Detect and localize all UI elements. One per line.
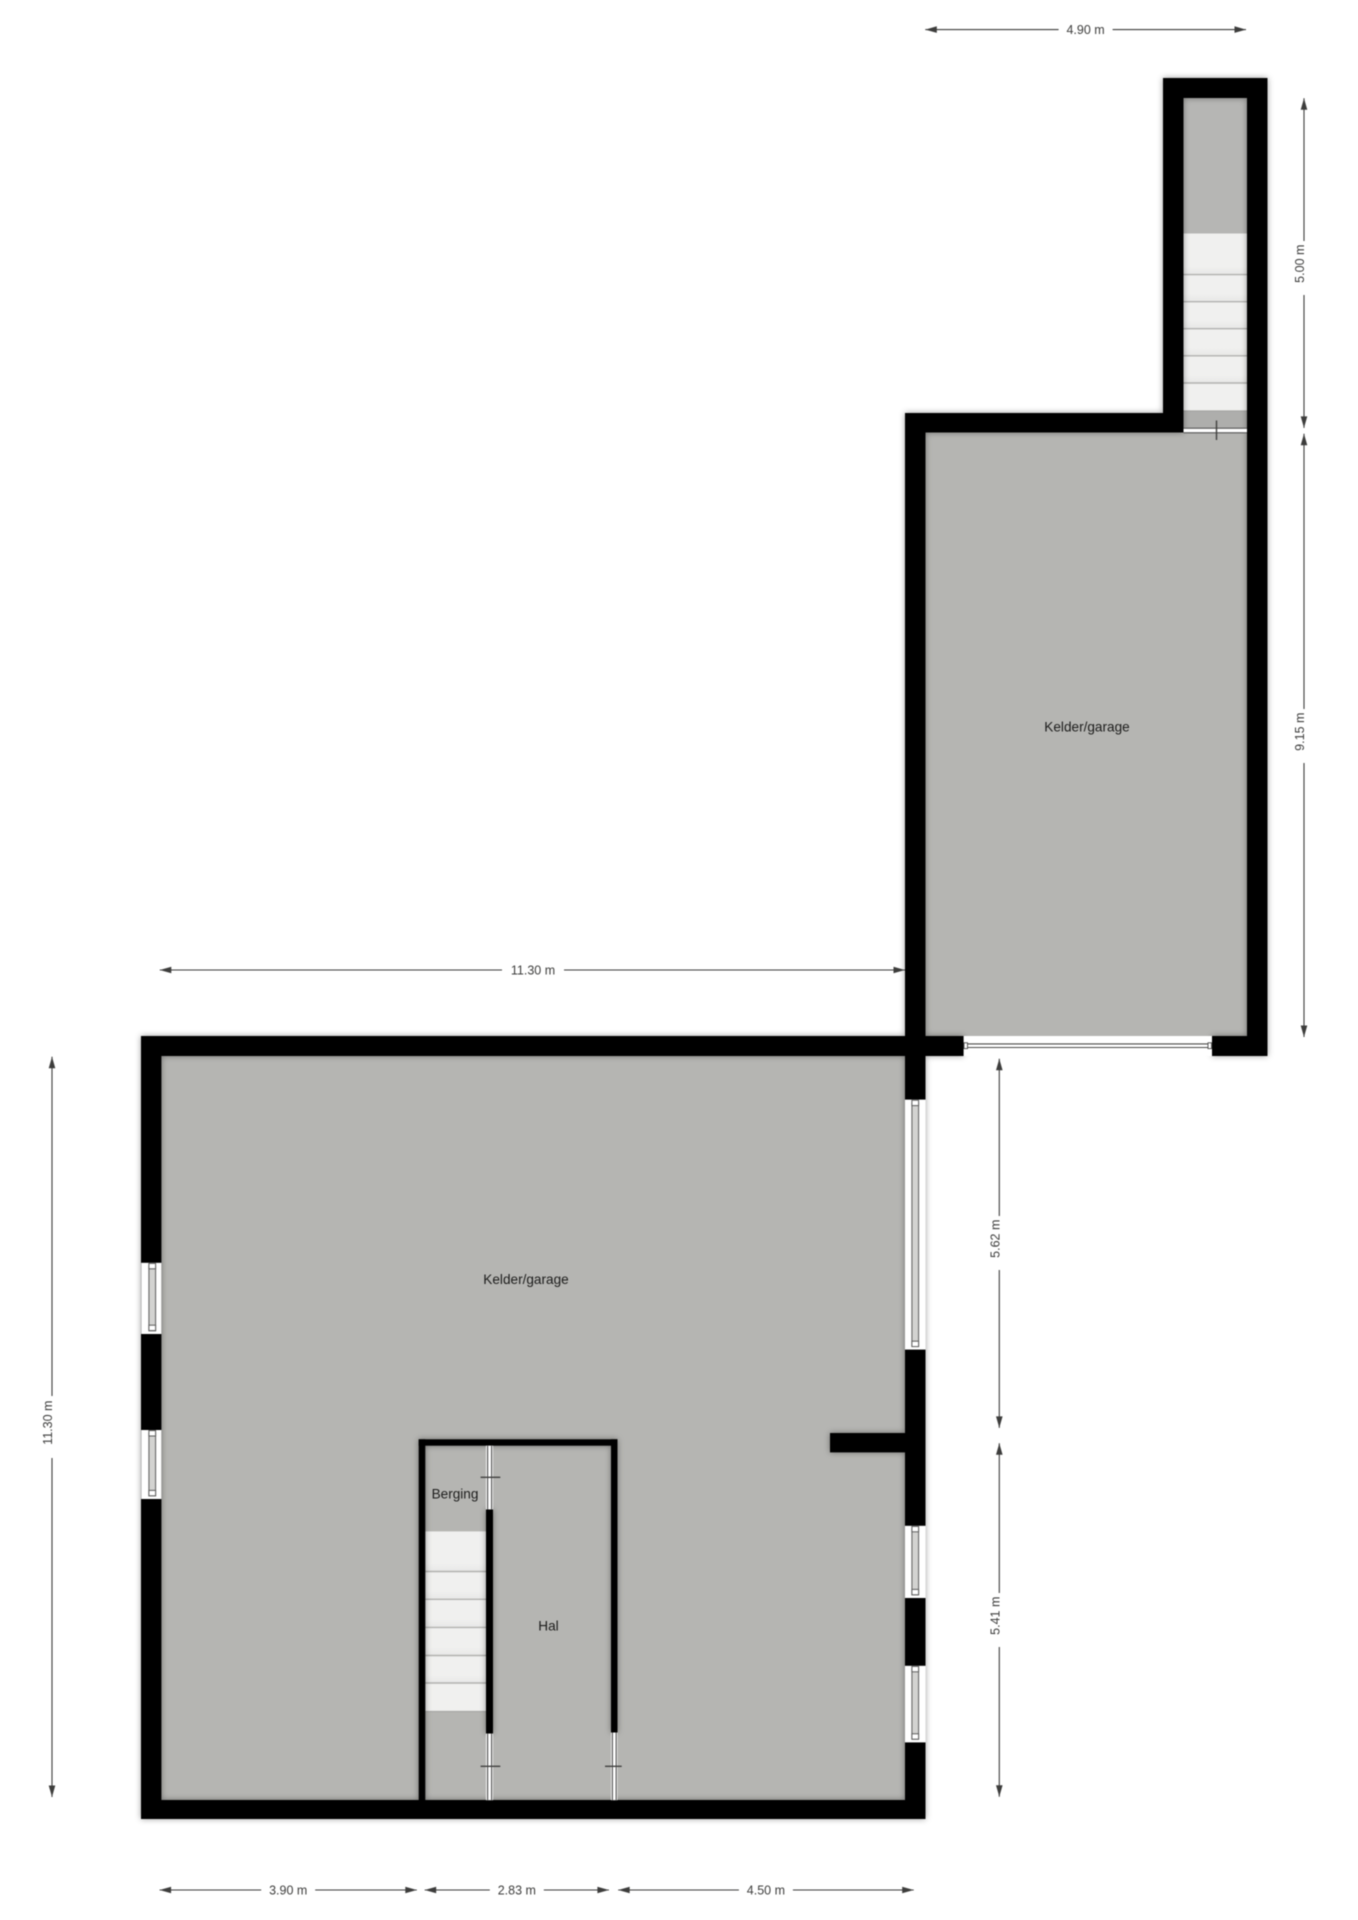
svg-text:5.00 m: 5.00 m: [1293, 245, 1307, 283]
svg-text:11.30 m: 11.30 m: [511, 963, 555, 977]
svg-text:Kelder/garage: Kelder/garage: [1044, 720, 1129, 735]
svg-text:Berging: Berging: [432, 1487, 479, 1502]
svg-text:4.90 m: 4.90 m: [1066, 23, 1104, 37]
svg-text:5.62 m: 5.62 m: [988, 1220, 1002, 1258]
svg-text:4.50 m: 4.50 m: [747, 1883, 785, 1897]
svg-text:11.30 m: 11.30 m: [41, 1401, 55, 1445]
svg-text:Kelder/garage: Kelder/garage: [483, 1272, 568, 1287]
svg-text:2.83 m: 2.83 m: [498, 1883, 536, 1897]
svg-text:9.15 m: 9.15 m: [1293, 713, 1307, 751]
svg-text:3.90 m: 3.90 m: [269, 1883, 307, 1897]
svg-text:Hal: Hal: [538, 1619, 558, 1634]
svg-text:5.41 m: 5.41 m: [988, 1597, 1002, 1635]
